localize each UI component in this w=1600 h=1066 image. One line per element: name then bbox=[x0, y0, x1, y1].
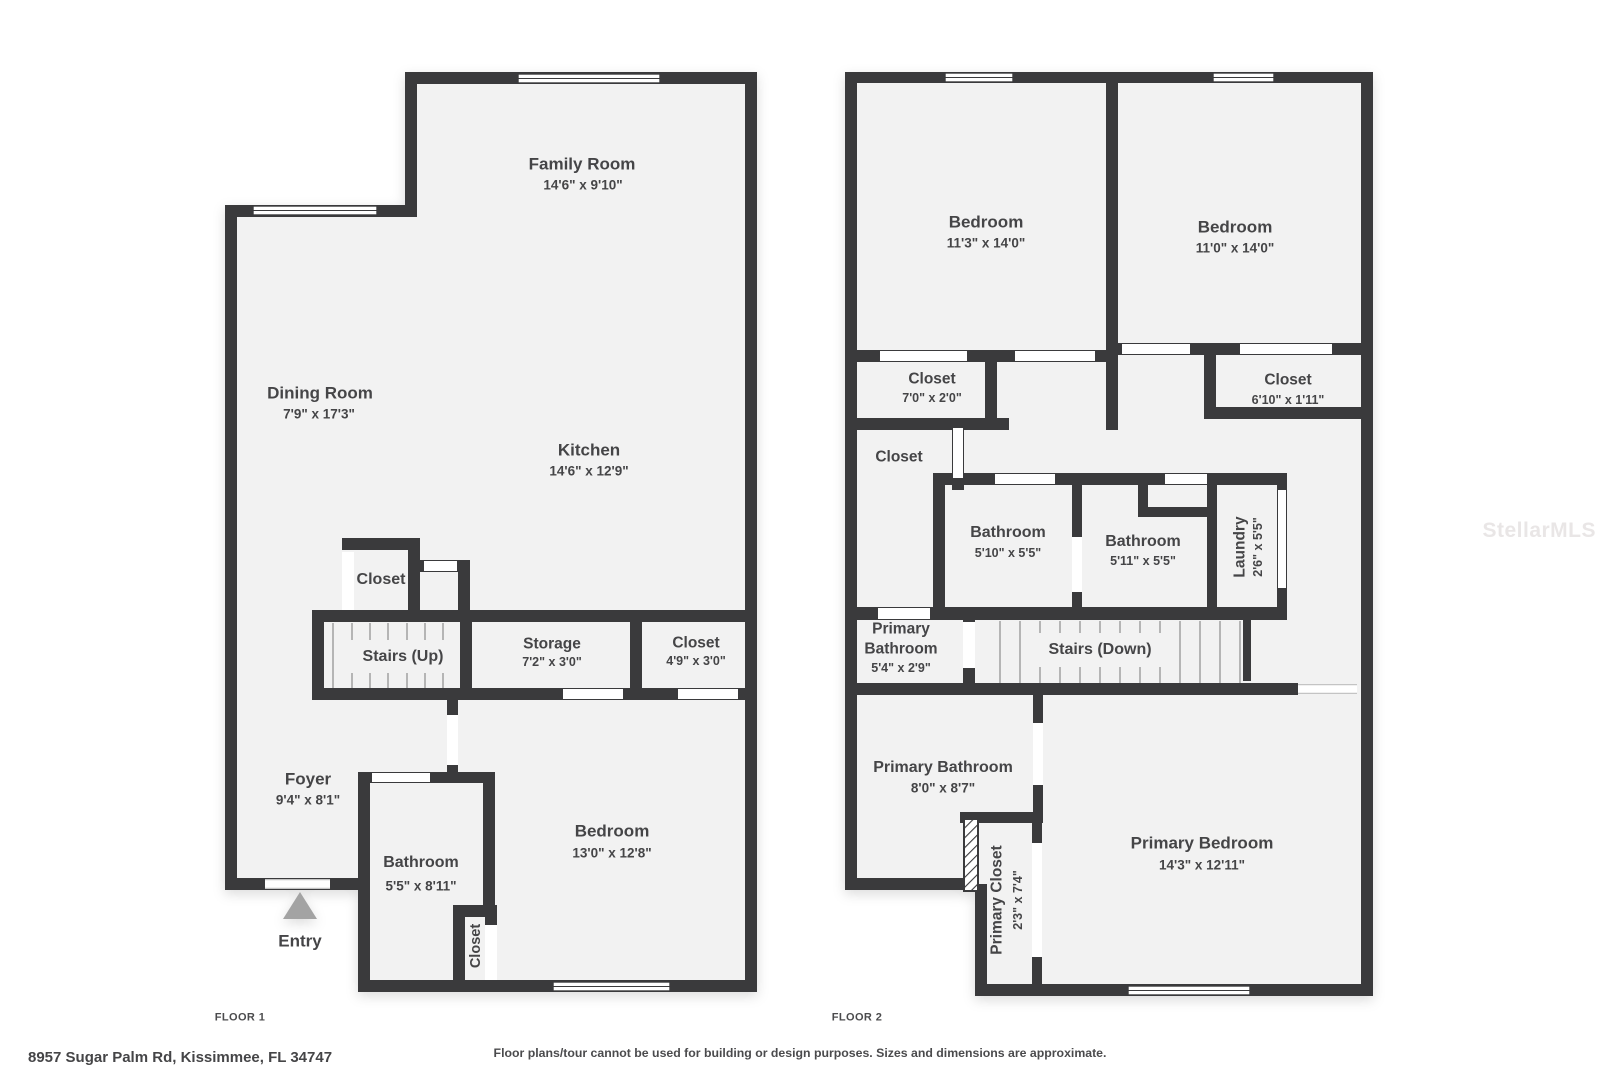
primary-bathroom-label: Primary Bathroom bbox=[873, 760, 1013, 776]
stairs-closet-label: Closet bbox=[672, 635, 719, 651]
laundry-dims: 2'6" x 5'5" bbox=[1252, 517, 1265, 577]
stellar-mls-watermark: StellarMLS bbox=[1482, 519, 1596, 543]
primary-bathroom-small-label-2: Bathroom bbox=[864, 641, 937, 657]
stairs-up-label: Stairs (Up) bbox=[363, 649, 444, 665]
bedroom-dims: 13'0" x 12'8" bbox=[572, 846, 651, 860]
bathroom-label: Bathroom bbox=[383, 855, 459, 871]
family-room-label: Family Room bbox=[529, 156, 636, 173]
primary-closet-dims: 2'3" x 7'4" bbox=[1012, 870, 1025, 930]
bathroom-right-label: Bathroom bbox=[1105, 534, 1181, 550]
hall-closet-label: Closet bbox=[357, 572, 406, 588]
floor1-plan bbox=[225, 72, 757, 992]
primary-bathroom-small-label-1: Primary bbox=[872, 621, 930, 637]
closet-right-label: Closet bbox=[1264, 372, 1311, 388]
entry-arrow-icon bbox=[283, 892, 317, 919]
laundry-label: Laundry bbox=[1232, 516, 1248, 577]
floor-plan-page: Family Room 14'6" x 9'10" Dining Room 7'… bbox=[0, 0, 1600, 1066]
primary-closet-label: Primary Closet bbox=[989, 845, 1005, 954]
foyer-dims: 9'4" x 8'1" bbox=[276, 793, 340, 807]
closet-left-dims: 7'0" x 2'0" bbox=[902, 392, 962, 405]
bedroom-right-label: Bedroom bbox=[1198, 219, 1273, 236]
floor-plan-drawing bbox=[0, 0, 1600, 1066]
hall-closet2-label: Closet bbox=[875, 449, 922, 465]
bedroom-right-dims: 11'0" x 14'0" bbox=[1196, 241, 1275, 255]
floor2-caption: FLOOR 2 bbox=[832, 1013, 882, 1024]
bathroom-left-label: Bathroom bbox=[970, 525, 1046, 541]
primary-bathroom-dims: 8'0" x 8'7" bbox=[911, 781, 975, 795]
bathroom-left-dims: 5'10" x 5'5" bbox=[975, 547, 1041, 560]
bathroom-right-dims: 5'11" x 5'5" bbox=[1110, 555, 1176, 568]
disclaimer-text: Floor plans/tour cannot be used for buil… bbox=[494, 1047, 1107, 1059]
primary-bedroom-label: Primary Bedroom bbox=[1131, 835, 1274, 852]
family-room-dims: 14'6" x 9'10" bbox=[543, 178, 622, 192]
foyer-label: Foyer bbox=[285, 771, 331, 788]
stairs-closet-dims: 4'9" x 3'0" bbox=[666, 655, 726, 668]
primary-bedroom-dims: 14'3" x 12'11" bbox=[1159, 858, 1245, 872]
hatched-wall bbox=[964, 819, 978, 891]
closet-right-dims: 6'10" x 1'11" bbox=[1252, 394, 1325, 407]
dining-room-label: Dining Room bbox=[267, 385, 373, 402]
dining-room-dims: 7'9" x 17'3" bbox=[283, 407, 355, 421]
storage-label: Storage bbox=[523, 636, 581, 652]
storage-dims: 7'2" x 3'0" bbox=[522, 656, 582, 669]
bedroom-left-dims: 11'3" x 14'0" bbox=[947, 236, 1026, 250]
stairs-down-label: Stairs (Down) bbox=[1048, 642, 1151, 658]
bathroom-dims: 5'5" x 8'11" bbox=[385, 879, 456, 893]
primary-bathroom-small-dims: 5'4" x 2'9" bbox=[871, 662, 931, 675]
bedroom-label: Bedroom bbox=[575, 823, 650, 840]
floor1-caption: FLOOR 1 bbox=[215, 1013, 265, 1024]
closet-left-label: Closet bbox=[908, 371, 955, 387]
bedroom-closet-label: Closet bbox=[469, 924, 484, 968]
bedroom-left-label: Bedroom bbox=[949, 214, 1024, 231]
kitchen-dims: 14'6" x 12'9" bbox=[549, 464, 628, 478]
property-address: 8957 Sugar Palm Rd, Kissimmee, FL 34747 bbox=[28, 1049, 332, 1066]
kitchen-label: Kitchen bbox=[558, 442, 620, 459]
entry-label: Entry bbox=[278, 933, 321, 950]
